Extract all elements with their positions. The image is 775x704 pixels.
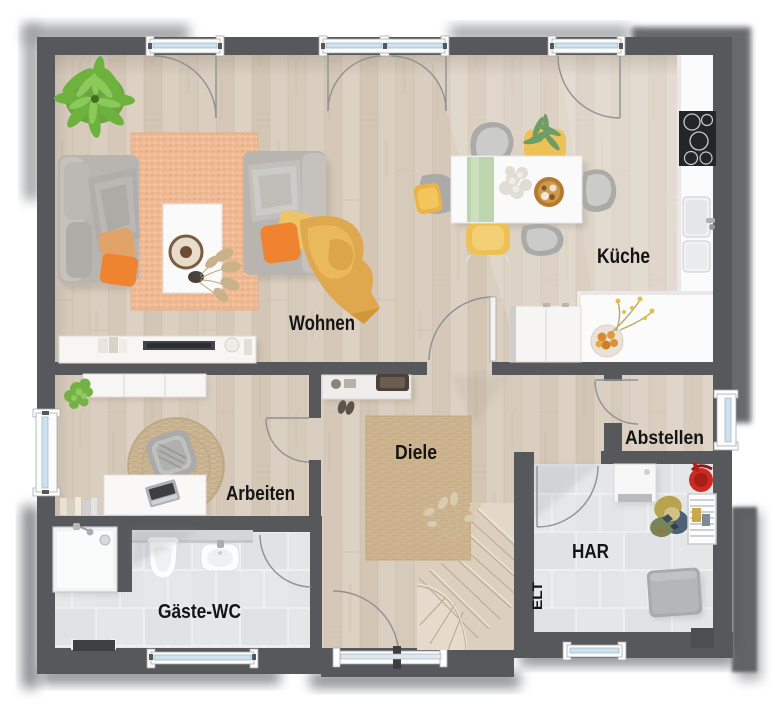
svg-text:Gäste-WC: Gäste-WC xyxy=(158,601,241,623)
svg-text:ELT: ELT xyxy=(530,581,545,610)
svg-text:HAR: HAR xyxy=(572,541,609,563)
svg-text:Arbeiten: Arbeiten xyxy=(226,483,295,505)
svg-text:Abstellen: Abstellen xyxy=(625,428,704,449)
svg-text:Diele: Diele xyxy=(395,442,437,464)
svg-text:Wohnen: Wohnen xyxy=(289,312,355,335)
svg-text:Küche: Küche xyxy=(597,245,650,268)
